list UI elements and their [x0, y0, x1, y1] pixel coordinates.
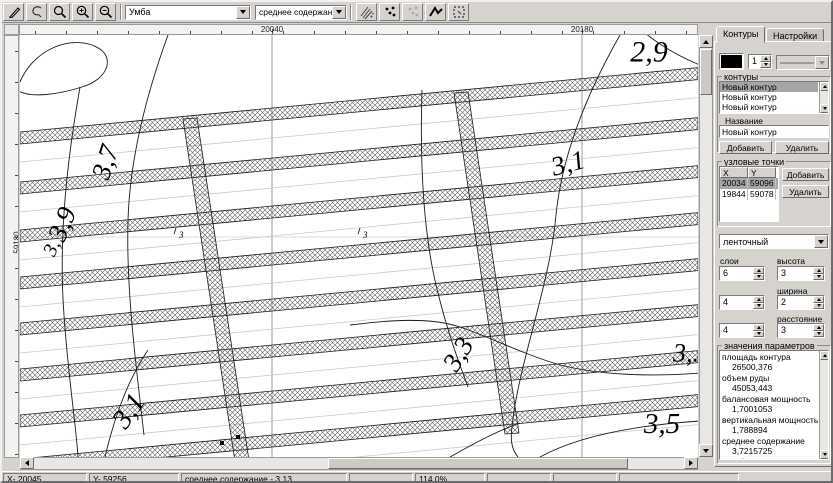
scroll-up-button[interactable]: [699, 35, 713, 48]
ruler-tick: [15, 144, 18, 145]
status-bar: X- 20045Y- 59256среднее содержание - 3,1…: [2, 471, 833, 483]
tab-contours-label: Контуры: [723, 29, 758, 39]
param-value: 26500,376: [720, 362, 818, 372]
point-marker-label: 3: [362, 230, 368, 240]
ruler-tick: [159, 31, 160, 34]
right-panel: Контуры Настройки 1 контуры Новый контур…: [714, 26, 833, 467]
scroll-right-icon: [689, 460, 693, 466]
parameter-combo-value: среднее содержание: [256, 7, 332, 17]
param-item: разубоживание29,923111: [720, 456, 818, 460]
contours-pane: 1 контуры Новый контурНовый контурНовый …: [714, 41, 833, 467]
pen-tool-icon: [6, 4, 22, 20]
spin-down-button[interactable]: [813, 331, 824, 338]
ruler-tick: [593, 31, 594, 34]
freehand-select-icon: [29, 4, 45, 20]
status-cell: [619, 473, 739, 483]
height-label: высота: [777, 256, 805, 266]
toolbar: Умба среднее содержание: [2, 2, 833, 23]
mine-map-svg: 2,93,13,73,93,3,13,33,.3,533: [20, 35, 698, 457]
grade-label: 3,5: [643, 408, 680, 440]
tab-settings[interactable]: Настройки: [766, 28, 824, 42]
status-cell: 114,0%: [415, 473, 485, 483]
ruler-tick: [531, 31, 532, 34]
ruler-tick: [15, 175, 18, 176]
param-value: 45053,443: [720, 383, 818, 393]
zoom-out-icon: [98, 4, 114, 20]
ruler-tick: [15, 268, 18, 269]
zoom-out-button[interactable]: [95, 3, 116, 21]
ruler-tick: [562, 31, 563, 34]
contour-list-scrollbar[interactable]: [819, 82, 828, 113]
param-name: среднее содержание: [720, 435, 818, 446]
param-name: площадь контура: [720, 351, 818, 362]
point-marker-tick: [358, 228, 360, 234]
parameter-combo-arrow[interactable]: [332, 6, 346, 19]
ruler-tick: [15, 113, 18, 114]
points-tool-icon: [382, 4, 398, 20]
ruler-tick: [314, 31, 315, 34]
ruler-tick: [97, 31, 98, 34]
ruler-tick: [283, 31, 284, 34]
spin-down-button[interactable]: [813, 274, 824, 281]
node-cell: 59096: [748, 178, 776, 189]
deposit-combo[interactable]: Умба: [125, 5, 251, 20]
zoom-tool-button[interactable]: [49, 3, 70, 21]
status-cell: [487, 473, 551, 483]
ruler-tick: [376, 31, 377, 34]
ruler-tick: [35, 31, 36, 34]
param-name: вертикальная мощность: [720, 414, 818, 425]
field2-spinner[interactable]: 4: [719, 295, 765, 310]
ruler-tick: [438, 31, 439, 34]
line-style-combo-arrow: [815, 56, 829, 69]
zoom-in-icon: [75, 4, 91, 20]
layers-spinner[interactable]: 6: [719, 266, 765, 281]
scroll-down-icon: [703, 449, 709, 453]
param-item: площадь контура26500,376: [720, 351, 818, 372]
distance-spinner[interactable]: 3: [777, 323, 825, 338]
band-type-combo[interactable]: ленточный: [719, 234, 829, 249]
grade-contour-line[interactable]: [511, 35, 620, 457]
line-style-combo: [776, 55, 830, 70]
ruler-tick: [15, 423, 18, 424]
ruler-tick: [469, 31, 470, 34]
contour-add-button[interactable]: Добавить: [719, 141, 772, 154]
contour-delete-button[interactable]: Удалить: [775, 141, 829, 154]
ruler-tick: [252, 31, 253, 34]
points-tool-disabled-button: [402, 3, 423, 21]
contour-color-swatch: [721, 55, 742, 68]
contour-list[interactable]: Новый контурНовый контурНовый контур: [719, 81, 829, 114]
parameter-combo[interactable]: среднее содержание: [255, 5, 347, 20]
params-scroll-down[interactable]: [820, 450, 829, 459]
param-item: балансовая мощность1,7001053: [720, 393, 818, 414]
scroll-right-button[interactable]: [684, 457, 698, 469]
deposit-combo-arrow[interactable]: [236, 6, 250, 19]
param-value: 1,788894: [720, 425, 818, 435]
node-table-row[interactable]: 1984459078: [720, 189, 778, 200]
ruler-tick: [407, 31, 408, 34]
region-select-icon: [451, 4, 467, 20]
toolbar-separator: [120, 4, 122, 20]
node-cell: 59078: [748, 189, 776, 200]
polyline-tool-icon: [428, 4, 444, 20]
scroll-down-button[interactable]: [699, 444, 713, 457]
width-value: 2: [778, 296, 813, 309]
band-type-value: ленточный: [720, 237, 814, 247]
line-width-spinner[interactable]: 1: [748, 54, 772, 69]
param-name: объем руды: [720, 372, 818, 383]
param-item: вертикальная мощность1,788894: [720, 414, 818, 435]
ruler-tick: [686, 31, 687, 34]
spin-down-button[interactable]: [753, 274, 764, 281]
params-scroll-up[interactable]: [820, 351, 829, 360]
param-name: балансовая мощность: [720, 393, 818, 404]
grade-label: 3,.: [672, 339, 698, 368]
ruler-label: 20040: [261, 25, 283, 34]
ruler-tick: [15, 330, 18, 331]
node-cell: 19844: [720, 189, 748, 200]
tab-settings-label: Настройки: [773, 31, 817, 41]
ruler-tick: [624, 31, 625, 34]
ruler-tick: [66, 31, 67, 34]
status-cell: [553, 473, 617, 483]
color-swatch-frame[interactable]: [719, 53, 744, 70]
field3-value: 4: [720, 324, 753, 337]
toolbar-separator: [350, 4, 352, 20]
tab-contours[interactable]: Контуры: [716, 26, 765, 43]
grade-label: 2,9: [630, 36, 668, 69]
ruler-label: 59180: [13, 231, 19, 253]
params-list[interactable]: площадь контура26500,376объем руды45053,…: [719, 350, 829, 460]
horizontal-ruler: 2004020180: [19, 24, 698, 35]
height-value: 3: [778, 267, 813, 280]
contour-list-item[interactable]: Новый контур: [720, 82, 818, 92]
params-scrollbar[interactable]: [819, 351, 828, 459]
polyline-tool-button[interactable]: [425, 3, 446, 21]
freehand-select-button[interactable]: [26, 3, 47, 21]
node-dot[interactable]: [236, 435, 240, 439]
band-type-combo-arrow[interactable]: [814, 235, 828, 248]
deposit-combo-value: Умба: [126, 7, 236, 17]
hatch-tool-icon: [359, 4, 375, 20]
point-marker-label: 3: [178, 230, 184, 240]
param-item: среднее содержание3,7215725: [720, 435, 818, 456]
line-style-sample: [777, 58, 815, 68]
ruler-tick: [500, 31, 501, 34]
param-value: 3,7215725: [720, 446, 818, 456]
width-spinner[interactable]: 2: [777, 295, 825, 310]
point-marker-tick: [174, 228, 176, 234]
ruler-tick: [15, 392, 18, 393]
layers-label: слои: [720, 256, 739, 266]
param-value: 1,7001053: [720, 404, 818, 414]
spin-down-button[interactable]: [753, 331, 764, 338]
spin-down-button[interactable]: [753, 303, 764, 310]
node-column-header[interactable]: Y: [748, 167, 776, 178]
status-cell: Y- 59256: [89, 473, 179, 483]
ruler-tick: [15, 82, 18, 83]
line-width-value: 1: [749, 55, 760, 68]
scroll-left-icon: [25, 460, 29, 466]
status-cell: [349, 473, 413, 483]
list-scroll-up[interactable]: [820, 82, 829, 91]
node-dot[interactable]: [220, 441, 224, 445]
ruler-tick: [15, 206, 18, 207]
node-table[interactable]: XY20034590961984459078: [719, 166, 779, 222]
field2-value: 4: [720, 296, 753, 309]
ruler-tick: [15, 361, 18, 362]
contour-list-item[interactable]: Новый контур: [720, 92, 818, 102]
list-scroll-down[interactable]: [820, 104, 829, 113]
ruler-corner: [4, 24, 19, 35]
ruler-tick: [15, 299, 18, 300]
ruler-tick: [345, 31, 346, 34]
node-delete-button[interactable]: Удалить: [782, 185, 829, 198]
ruler-tick: [655, 31, 656, 34]
vertical-scrollbar[interactable]: [699, 35, 713, 457]
vertical-scroll-thumb[interactable]: [700, 49, 712, 95]
app-window: Умба среднее содержание: [0, 0, 833, 483]
ruler-tick: [15, 51, 18, 52]
node-add-button[interactable]: Добавить: [782, 168, 829, 181]
pen-tool-button[interactable]: [3, 3, 24, 21]
region-select-button[interactable]: [448, 3, 469, 21]
spin-down-button[interactable]: [813, 303, 824, 310]
horizontal-scroll-thumb[interactable]: [328, 458, 628, 469]
contour-name-input[interactable]: Новый контур: [719, 125, 829, 138]
zoom-in-button[interactable]: [72, 3, 93, 21]
ruler-tick: [15, 454, 18, 455]
vertical-ruler: 59180: [4, 35, 19, 458]
scroll-left-button[interactable]: [20, 457, 34, 469]
zoom-tool-icon: [52, 4, 68, 20]
points-tool-button[interactable]: [379, 3, 400, 21]
distance-value: 3: [778, 324, 813, 337]
points-tool-disabled-icon: [405, 4, 421, 20]
field3-spinner[interactable]: 4: [719, 323, 765, 338]
ruler-tick: [128, 31, 129, 34]
param-item: объем руды45053,443: [720, 372, 818, 393]
grade-contour-line[interactable]: [20, 43, 107, 95]
node-table-row[interactable]: 2003459096: [720, 178, 778, 189]
hatch-tool-button[interactable]: [356, 3, 377, 21]
node-column-header[interactable]: X: [720, 167, 748, 178]
node-table-header: XY: [720, 167, 778, 178]
horizontal-scrollbar[interactable]: [20, 457, 698, 470]
layers-value: 6: [720, 267, 753, 280]
status-cell: среднее содержание - 3,13: [181, 473, 347, 483]
spin-down-button[interactable]: [760, 62, 771, 69]
ruler-tick: [190, 31, 191, 34]
node-cell: 20034: [720, 178, 748, 189]
map-canvas[interactable]: 2,93,13,73,93,3,13,33,.3,533: [20, 35, 698, 457]
height-spinner[interactable]: 3: [777, 266, 825, 281]
param-name: разубоживание: [720, 456, 818, 460]
contour-list-item[interactable]: Новый контур: [720, 102, 818, 112]
status-cell: X- 20045: [3, 473, 87, 483]
ruler-label: 20180: [571, 25, 593, 34]
scroll-up-icon: [703, 40, 709, 44]
ruler-tick: [221, 31, 222, 34]
